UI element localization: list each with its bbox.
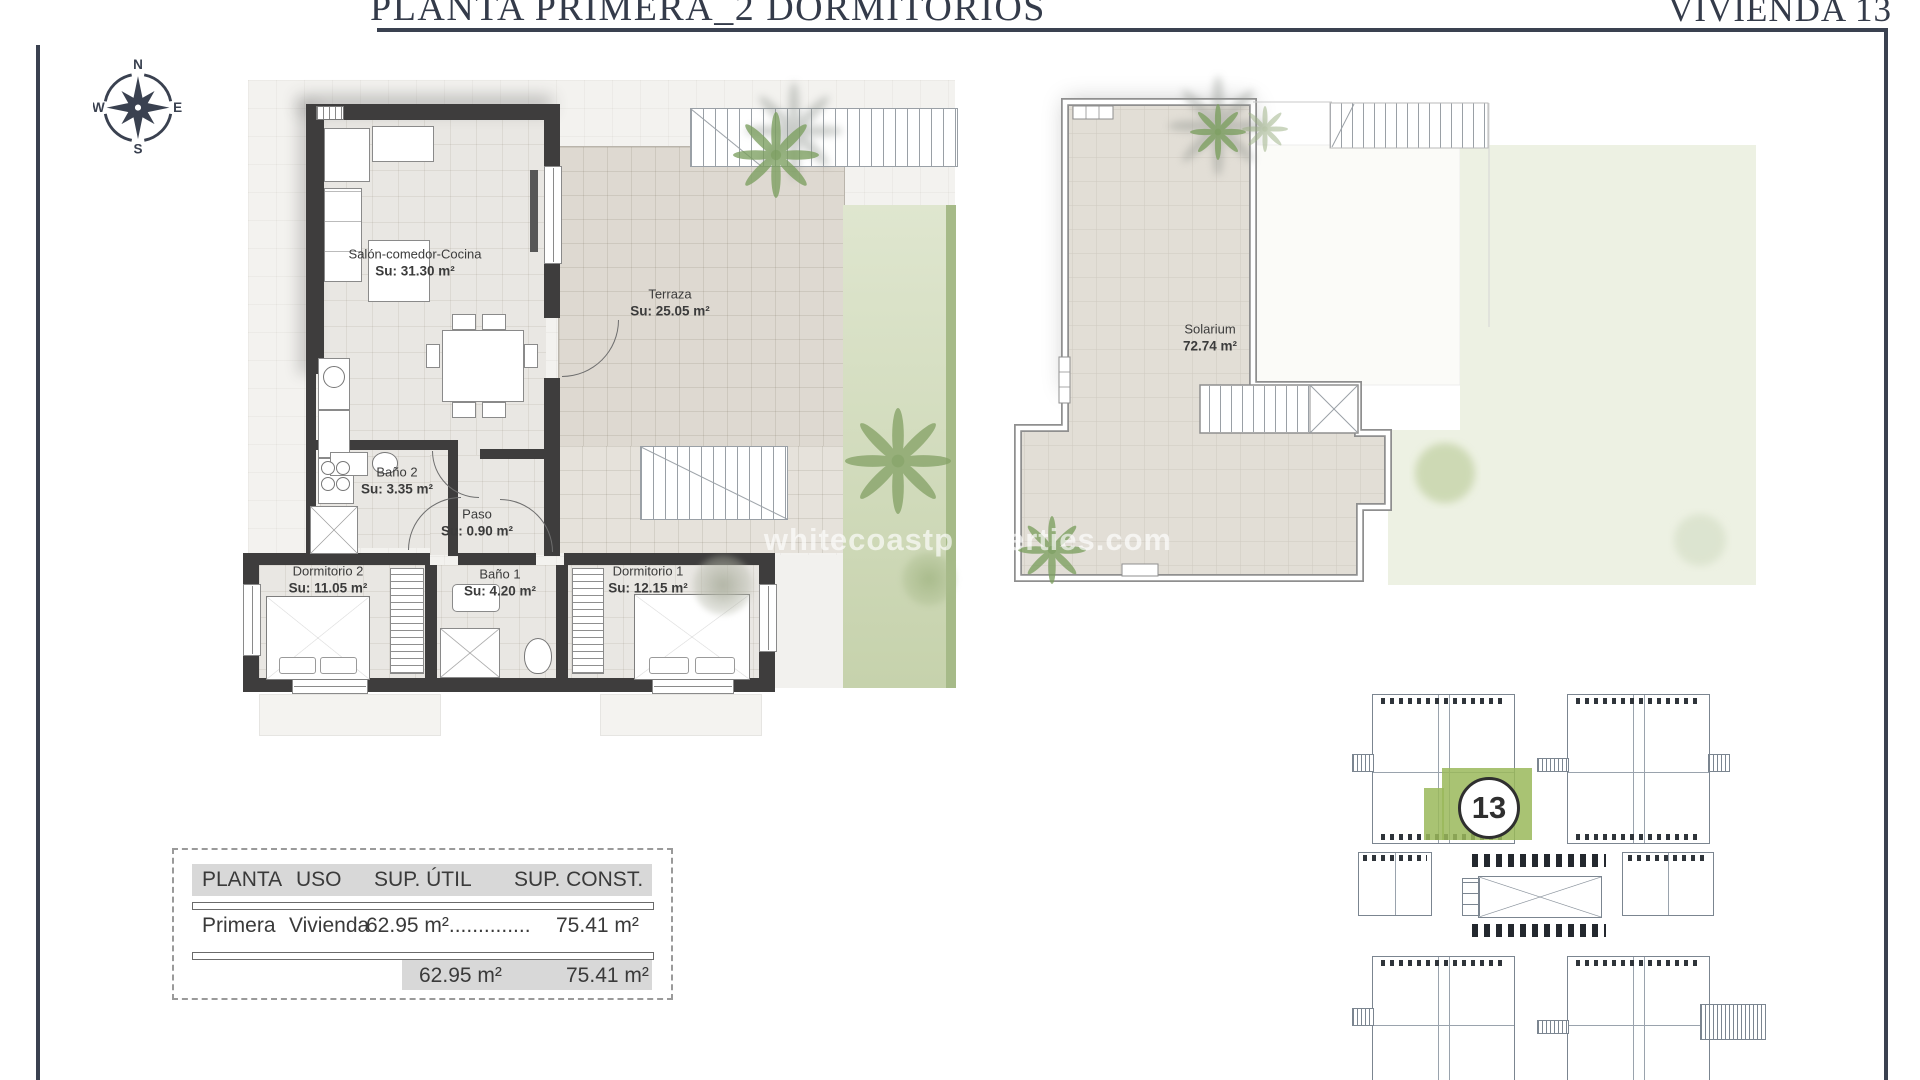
watermark: whitecoastproperties.com: [764, 522, 1172, 558]
highlighted-unit-area: [1424, 788, 1444, 840]
key-plan-line: [1395, 853, 1396, 915]
table-separator: [192, 902, 654, 910]
key-plan-ticks: [1381, 698, 1505, 704]
bush: [902, 552, 956, 606]
burner-icon: [336, 461, 350, 475]
window: [243, 584, 261, 656]
key-plan-line: [1438, 957, 1439, 1080]
key-plan-block: [1567, 694, 1710, 844]
room-label-dormitorio2: Dormitorio 2 Su: 11.05 m²: [289, 563, 368, 598]
patio: [259, 694, 441, 736]
shower: [310, 506, 358, 554]
chair: [452, 314, 476, 330]
key-plan-unit: [1358, 852, 1432, 916]
armchair: [324, 128, 370, 182]
burner-icon: [321, 461, 335, 475]
bush: [1674, 514, 1726, 566]
stairs: [1700, 1004, 1766, 1040]
stairs-treads: [1201, 386, 1309, 432]
room-name: Baño 2: [361, 464, 433, 481]
total-sup-const: 75.41 m²: [566, 964, 649, 988]
window: [652, 678, 734, 694]
neighbour-area: [1253, 145, 1460, 385]
room-label-salon: Salón-comedor-Cocina Su: 31.30 m²: [349, 246, 482, 281]
vent: [1122, 564, 1158, 576]
stairs-diagonal: [641, 447, 787, 519]
room-area: 72.74 m²: [1183, 338, 1237, 356]
stairs: [1537, 758, 1569, 772]
key-plan-line: [1373, 1025, 1514, 1026]
room-name: Paso: [441, 506, 513, 523]
key-plan-block: [1567, 956, 1710, 1080]
stairs: [1352, 754, 1374, 772]
bush: [693, 555, 753, 615]
page-title: PLANTA PRIMERA_2 DORMITORIOS: [370, 0, 1046, 30]
key-plan-unit: [1622, 852, 1714, 916]
wall: [544, 104, 560, 166]
pillow: [320, 657, 357, 674]
total-sup-util: 62.95 m²: [419, 964, 502, 988]
pillow: [279, 657, 316, 674]
col-header-uso: USO: [296, 868, 342, 892]
key-plan-ticks: [1363, 855, 1426, 861]
room-name: Salón-comedor-Cocina: [349, 246, 482, 263]
burner-icon: [321, 477, 335, 491]
room-area: Su: 25.05 m²: [630, 303, 710, 321]
parking-dashes: [1472, 924, 1606, 937]
parking-dashes: [1472, 854, 1606, 867]
room-name: Solarium: [1183, 321, 1237, 338]
vent: [316, 106, 344, 120]
vent: [1073, 106, 1113, 119]
room-name: Terraza: [630, 286, 710, 303]
surface-table: PLANTA USO SUP. ÚTIL SUP. CONST. Primera…: [172, 848, 673, 1000]
wall: [556, 565, 568, 678]
wall: [544, 262, 560, 318]
wall: [480, 449, 560, 459]
room-area: Su: 11.05 m²: [289, 580, 368, 598]
col-header-sup-util: SUP. ÚTIL: [374, 868, 472, 892]
tv-table: [372, 126, 434, 162]
burner-icon: [336, 477, 350, 491]
key-plan-line: [1644, 695, 1645, 843]
toilet: [524, 638, 552, 674]
key-plan-ticks: [1628, 855, 1707, 861]
key-plan-court: [1460, 846, 1618, 948]
stairs: [640, 446, 788, 520]
compass-e-label: E: [173, 100, 182, 115]
room-label-bano2: Baño 2 Su: 3.35 m²: [361, 464, 433, 499]
room-name: Baño 1: [464, 566, 536, 583]
room-name: Dormitorio 2: [289, 563, 368, 580]
key-plan-line: [1633, 695, 1634, 843]
left-rule: [36, 45, 40, 1080]
compass-rose-icon: N E S W: [93, 52, 183, 156]
shower: [440, 628, 500, 678]
chair: [482, 314, 506, 330]
tv-unit: [530, 170, 538, 252]
wardrobe: [572, 568, 604, 674]
patio: [773, 555, 843, 688]
key-plan-line: [1644, 957, 1645, 1080]
brochure-page: PLANTA PRIMERA_2 DORMITORIOS VIVIENDA 13…: [0, 0, 1920, 1080]
wall: [306, 104, 324, 374]
room-name: Dormitorio 1: [608, 563, 688, 580]
right-rule: [1884, 28, 1888, 1080]
room-label-bano1: Baño 1 Su: 4.20 m²: [464, 566, 536, 601]
window: [292, 678, 368, 694]
room-area: Su: 0.90 m²: [441, 523, 513, 541]
stairs: [1708, 754, 1730, 772]
chair: [524, 344, 538, 368]
parked-cars: [1462, 878, 1480, 916]
palm-icon: [1242, 106, 1288, 152]
patio: [600, 694, 762, 736]
col-header-sup-const: SUP. CONST.: [514, 868, 643, 892]
col-header-planta: PLANTA: [202, 868, 282, 892]
key-plan-line: [1633, 957, 1634, 1080]
wall: [425, 565, 437, 678]
compass-n-label: N: [133, 57, 143, 72]
room-area: Su: 12.15 m²: [608, 580, 688, 598]
unit-number-badge: 13: [1458, 777, 1520, 839]
chair: [482, 402, 506, 418]
pool: [1478, 876, 1602, 918]
bed: [266, 596, 370, 680]
room-area: Su: 31.30 m²: [349, 263, 482, 281]
wall: [458, 553, 536, 565]
wardrobe: [390, 568, 424, 674]
palm-icon: [845, 408, 951, 514]
room-label-solarium: Solarium 72.74 m²: [1183, 321, 1237, 356]
chair: [426, 344, 440, 368]
dining-table: [442, 330, 524, 402]
key-plan: 13: [1352, 688, 1772, 1080]
room-area: Su: 4.20 m²: [464, 583, 536, 601]
solarium-plan: [1000, 85, 1770, 595]
key-plan-line: [1449, 957, 1450, 1080]
stairs: [1330, 103, 1488, 148]
key-plan-line: [1568, 1025, 1709, 1026]
key-plan-block: [1372, 956, 1515, 1080]
room-label-terraza: Terraza Su: 25.05 m²: [630, 286, 710, 321]
cell-uso: Vivienda: [289, 914, 369, 938]
window: [544, 166, 562, 264]
stairs: [1537, 1020, 1569, 1034]
key-plan-ticks: [1576, 834, 1700, 840]
cell-sup-const: 75.41 m²: [556, 914, 639, 938]
room-area: Su: 3.35 m²: [361, 481, 433, 499]
room-label-paso: Paso Su: 0.90 m²: [441, 506, 513, 541]
palm-icon: [733, 112, 819, 198]
cell-sup-util: 62.95 m²..............: [366, 914, 531, 938]
vent: [1059, 357, 1070, 403]
window: [759, 584, 777, 652]
room-label-dormitorio1: Dormitorio 1 Su: 12.15 m²: [608, 563, 688, 598]
wall: [306, 104, 560, 120]
compass-s-label: S: [133, 142, 142, 157]
sink-icon: [323, 366, 345, 388]
palm-icon: [1190, 104, 1246, 160]
stairs: [1352, 1008, 1374, 1026]
key-plan-ticks: [1576, 698, 1700, 704]
key-plan-line: [1668, 853, 1669, 915]
compass-w-label: W: [93, 100, 105, 115]
kitchen-counter: [318, 410, 350, 458]
key-plan-line: [1568, 772, 1709, 773]
bush: [1415, 443, 1475, 503]
pillow: [649, 657, 690, 674]
key-plan-ticks: [1576, 960, 1700, 966]
chair: [452, 402, 476, 418]
top-rule: [377, 28, 1888, 32]
pillow: [695, 657, 736, 674]
cell-planta: Primera: [202, 914, 276, 938]
key-plan-ticks: [1381, 960, 1505, 966]
unit-title: VIVIENDA 13: [1668, 0, 1892, 30]
table-separator: [192, 952, 654, 960]
